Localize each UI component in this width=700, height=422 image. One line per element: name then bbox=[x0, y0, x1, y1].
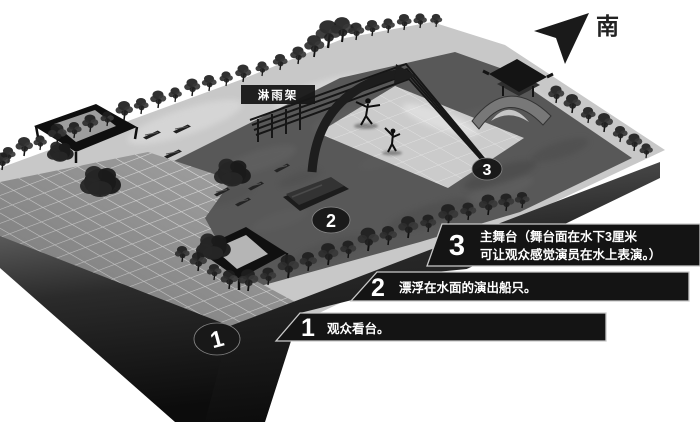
stage-plan-figure: 南 淋雨架 1 2 3 3 主舞台（舞台面在水下3厘米 可让观众感觉演员在水上表… bbox=[0, 0, 700, 422]
compass-label: 南 bbox=[596, 13, 619, 39]
callout-1-num: 1 bbox=[301, 314, 315, 342]
callout-bar-3: 3 主舞台（舞台面在水下3厘米 可让观众感觉演员在水上表演。） bbox=[427, 224, 700, 266]
marker-1: 1 bbox=[194, 323, 240, 355]
marker-3-num: 3 bbox=[483, 162, 492, 179]
navigation-arrow-icon bbox=[534, 13, 589, 64]
marker-2: 2 bbox=[312, 207, 350, 233]
compass: 南 bbox=[534, 13, 619, 64]
frame-label-text: 淋雨架 bbox=[258, 88, 299, 102]
marker-3: 3 bbox=[472, 158, 502, 180]
callout-3-num: 3 bbox=[449, 230, 465, 262]
callout-bar-1: 1 观众看台。 bbox=[276, 313, 606, 342]
marker-2-num: 2 bbox=[326, 211, 336, 231]
callout-bar-2: 2 漂浮在水面的演出船只。 bbox=[351, 272, 689, 302]
callout-3-line1: 主舞台（舞台面在水下3厘米 bbox=[480, 229, 637, 244]
callout-2-text: 漂浮在水面的演出船只。 bbox=[399, 280, 537, 295]
frame-label: 淋雨架 bbox=[241, 85, 315, 104]
callout-3-line2: 可让观众感觉演员在水上表演。） bbox=[480, 247, 661, 262]
callout-2-num: 2 bbox=[371, 274, 385, 302]
callout-1-text: 观众看台。 bbox=[327, 321, 390, 336]
scene-illustration: 南 淋雨架 1 2 3 3 主舞台（舞台面在水下3厘米 可让观众感觉演员在水上表… bbox=[0, 0, 700, 422]
